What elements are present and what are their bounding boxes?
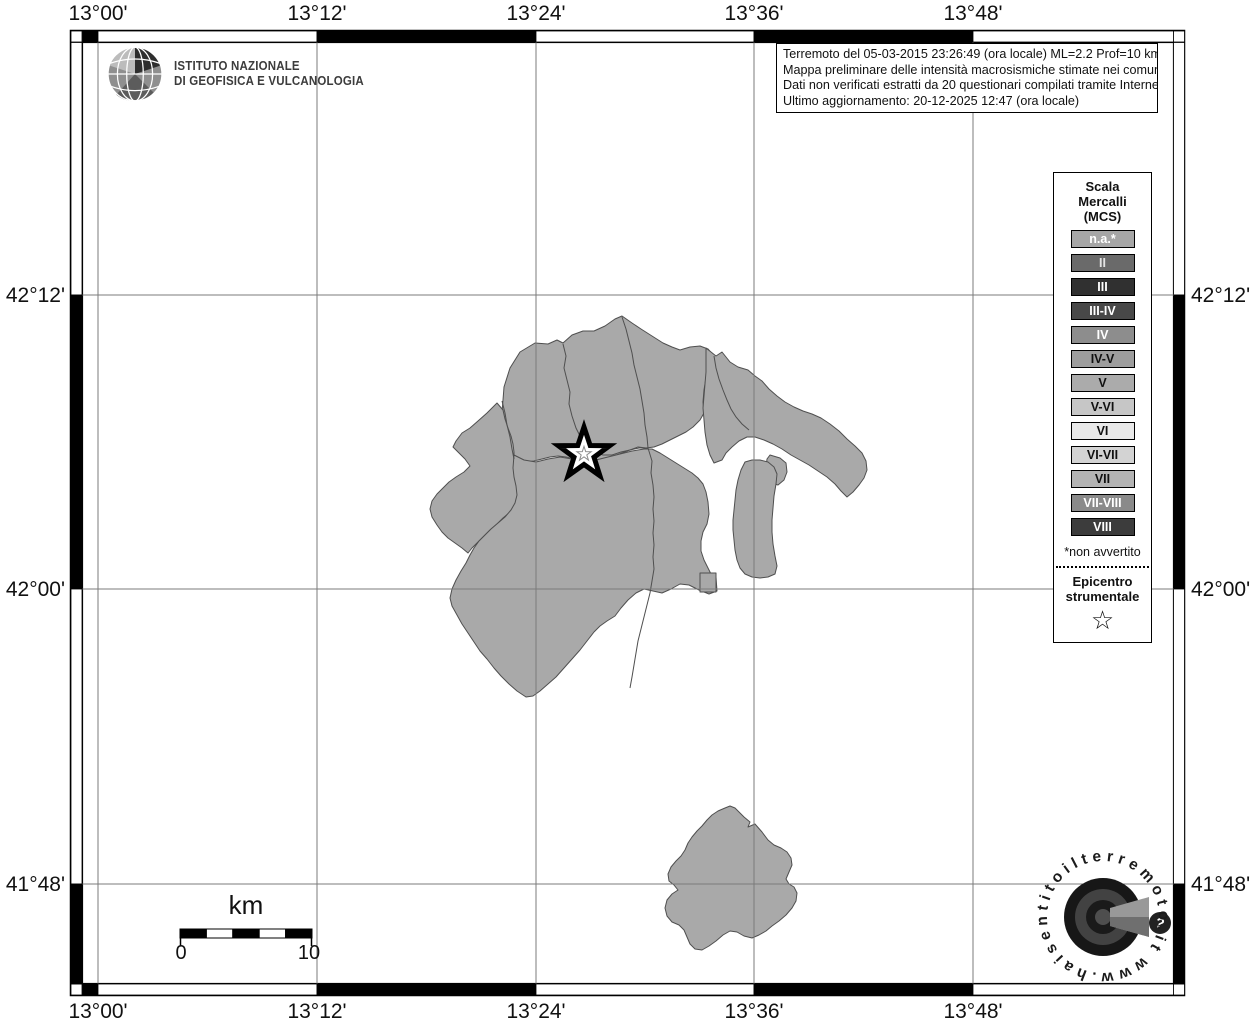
axis-label-bottom-1: 13°12' — [287, 1000, 346, 1024]
legend-epicenter-label: Epicentro strumentale — [1054, 574, 1151, 604]
event-info-line1: Terremoto del 05-03-2015 23:26:49 (ora l… — [783, 47, 1151, 63]
municipality-polygon — [502, 316, 714, 462]
axis-label-top-2: 13°24' — [506, 2, 565, 26]
municipality-polygon — [665, 806, 797, 950]
macroseismic-map-page: 13°00' 13°12' 13°24' 13°36' 13°48' 13°00… — [0, 0, 1255, 1024]
axis-label-bottom-0: 13°00' — [68, 1000, 127, 1024]
axis-label-left-0: 42°12' — [1, 284, 65, 308]
axis-label-bottom-4: 13°48' — [943, 1000, 1002, 1024]
legend-item-viii: VIII — [1071, 518, 1135, 536]
legend-item-vi: VI — [1071, 422, 1135, 440]
scale-bar-end: 10 — [292, 942, 326, 965]
legend-item-iv-v: IV-V — [1071, 350, 1135, 368]
axis-label-right-1: 42°00' — [1191, 578, 1250, 602]
legend-epicenter-line2: strumentale — [1054, 589, 1151, 604]
axis-label-top-3: 13°36' — [724, 2, 783, 26]
legend-separator — [1056, 566, 1149, 568]
ingv-name: ISTITUTO NAZIONALE DI GEOFISICA E VULCAN… — [174, 59, 364, 89]
legend-epicenter-line1: Epicentro — [1054, 574, 1151, 589]
event-info-line2: Mappa preliminare delle intensità macros… — [783, 63, 1151, 79]
ingv-logo: ISTITUTO NAZIONALE DI GEOFISICA E VULCAN… — [106, 45, 380, 103]
legend-title-line1: Scala — [1054, 179, 1151, 194]
axis-label-right-0: 42°12' — [1191, 284, 1250, 308]
ingv-globe-icon — [106, 45, 164, 103]
scale-bar-start: 0 — [166, 942, 196, 965]
legend-item-v: V — [1071, 374, 1135, 392]
legend-item-v-vi: V-VI — [1071, 398, 1135, 416]
ingv-name-line2: DI GEOFISICA E VULCANOLOGIA — [174, 74, 364, 89]
axis-label-bottom-3: 13°36' — [724, 1000, 783, 1024]
legend-title-line3: (MCS) — [1054, 209, 1151, 224]
legend-title-line2: Mercalli — [1054, 194, 1151, 209]
legend-item-iii: III — [1071, 278, 1135, 296]
axis-label-right-2: 41°48' — [1191, 873, 1250, 897]
legend-star-icon: ☆ — [1054, 608, 1151, 634]
legend-item-vii: VII — [1071, 470, 1135, 488]
axis-label-left-1: 42°00' — [1, 578, 65, 602]
axis-label-top-0: 13°00' — [68, 2, 127, 26]
legend-footnote: *non avvertito — [1054, 545, 1151, 559]
axis-label-top-1: 13°12' — [287, 2, 346, 26]
legend-item-vi-vii: VI-VII — [1071, 446, 1135, 464]
mercalli-legend: Scala Mercalli (MCS) n.a.* II III III-IV… — [1053, 172, 1152, 643]
legend-title: Scala Mercalli (MCS) — [1054, 179, 1151, 224]
event-info-line3: Dati non verificati estratti da 20 quest… — [783, 78, 1151, 94]
axis-label-left-2: 41°48' — [1, 873, 65, 897]
legend-item-vii-viii: VII-VIII — [1071, 494, 1135, 512]
scale-bar-unit: km — [180, 890, 312, 921]
municipality-polygon — [733, 460, 777, 578]
axis-label-bottom-2: 13°24' — [506, 1000, 565, 1024]
ingv-name-line1: ISTITUTO NAZIONALE — [174, 59, 364, 74]
legend-item-ii: II — [1071, 254, 1135, 272]
legend-item-na: n.a.* — [1071, 230, 1135, 248]
event-info-box: Terremoto del 05-03-2015 23:26:49 (ora l… — [776, 43, 1158, 113]
axis-label-top-4: 13°48' — [943, 2, 1002, 26]
haisentito-logo: ? www.haisentitoilterremoto.it — [1028, 842, 1178, 992]
municipality-polygons — [430, 316, 867, 950]
legend-item-iv: IV — [1071, 326, 1135, 344]
legend-item-iii-iv: III-IV — [1071, 302, 1135, 320]
event-info-line4: Ultimo aggiornamento: 20-12-2025 12:47 (… — [783, 94, 1151, 110]
